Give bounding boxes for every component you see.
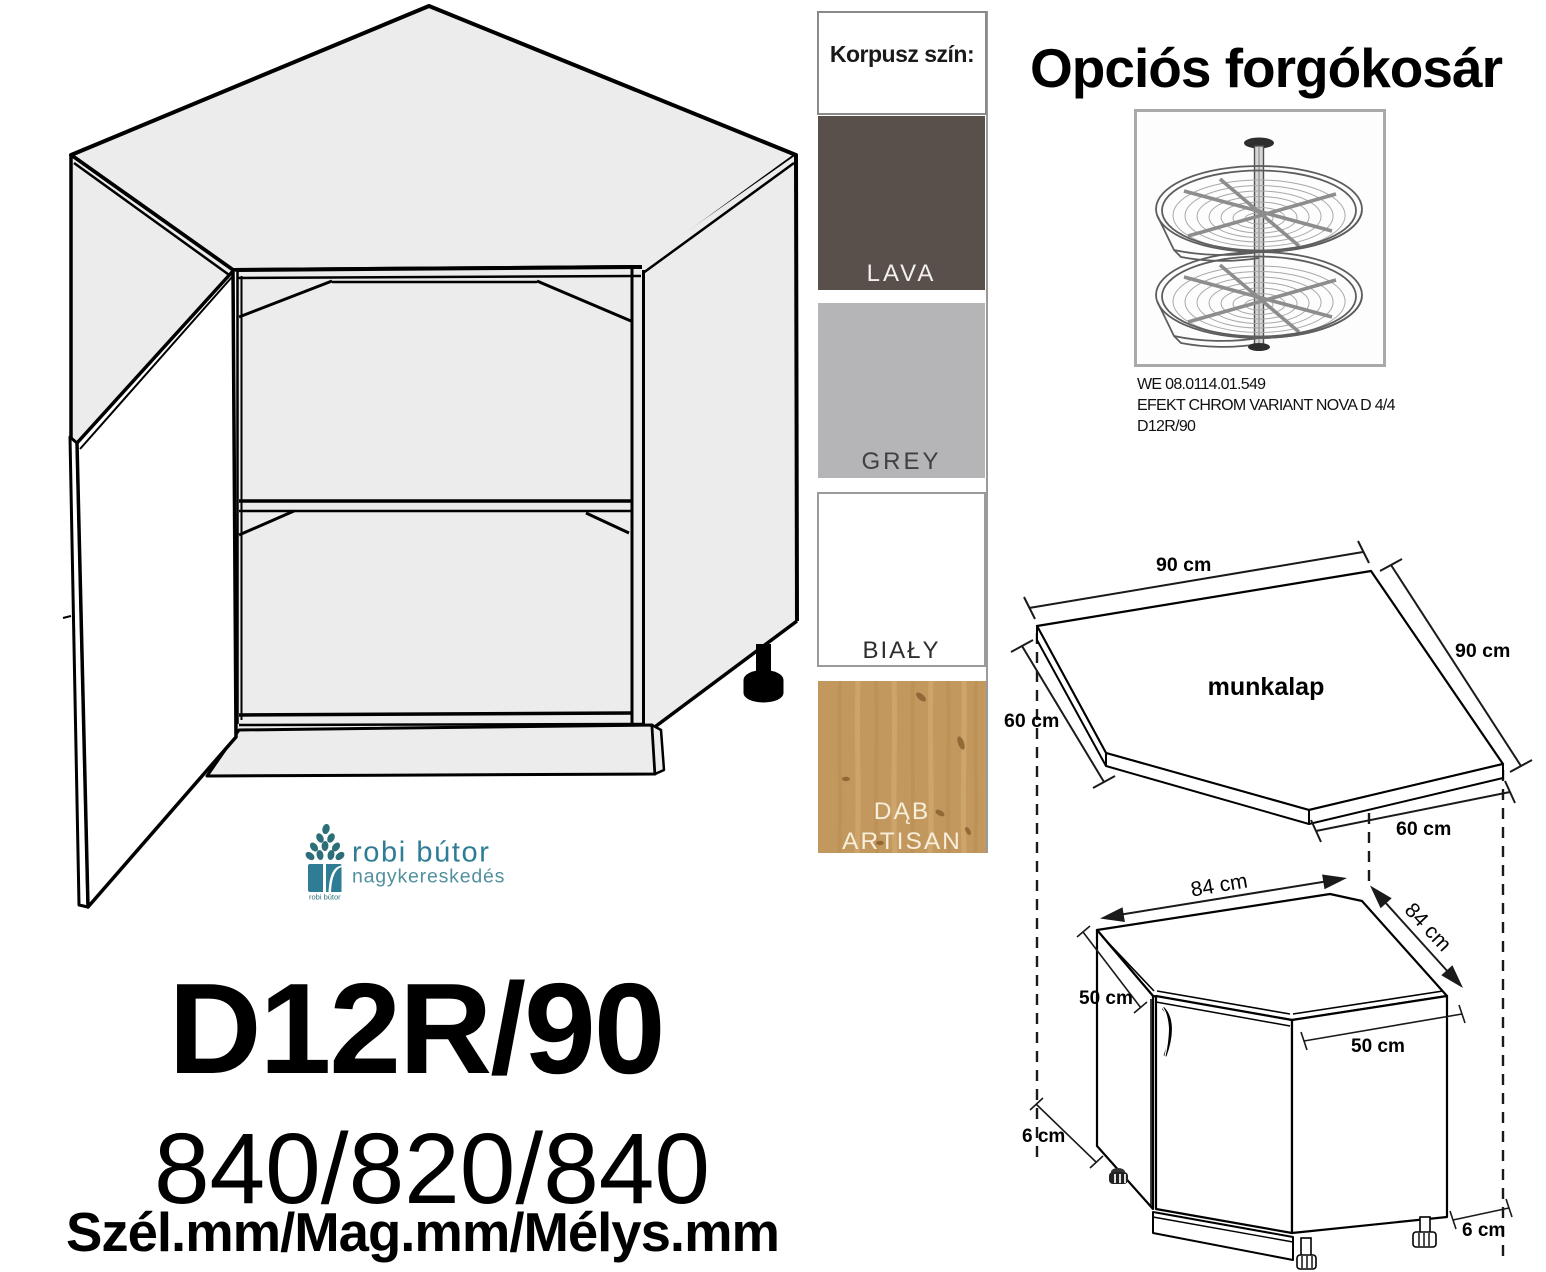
svg-text:robi bútor: robi bútor bbox=[352, 837, 491, 869]
svg-text:60 cm: 60 cm bbox=[1396, 818, 1451, 840]
svg-text:90 cm: 90 cm bbox=[1455, 640, 1510, 662]
svg-text:nagykereskedés: nagykereskedés bbox=[352, 866, 505, 888]
svg-text:6 cm: 6 cm bbox=[1462, 1220, 1505, 1241]
svg-text:munkalap: munkalap bbox=[1208, 673, 1325, 701]
svg-text:90 cm: 90 cm bbox=[1156, 554, 1211, 576]
svg-text:50 cm: 50 cm bbox=[1079, 988, 1133, 1009]
svg-text:50 cm: 50 cm bbox=[1351, 1036, 1405, 1057]
svg-text:84 cm: 84 cm bbox=[1189, 869, 1249, 901]
svg-text:robi bútor: robi bútor bbox=[309, 893, 341, 902]
svg-text:60 cm: 60 cm bbox=[1004, 710, 1059, 732]
svg-text:6 cm: 6 cm bbox=[1022, 1126, 1065, 1147]
